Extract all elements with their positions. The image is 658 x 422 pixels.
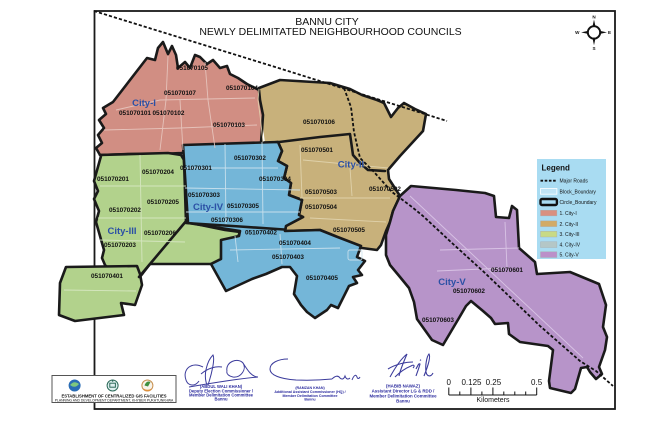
svg-text:Legend: Legend: [542, 164, 571, 173]
svg-text:051070206: 051070206: [144, 230, 176, 237]
svg-text:051070403: 051070403: [272, 254, 304, 261]
svg-text:051070306: 051070306: [211, 217, 243, 224]
svg-text:051070503: 051070503: [305, 189, 337, 196]
svg-text:City-IV: City-IV: [193, 202, 224, 213]
svg-text:051070202: 051070202: [109, 207, 141, 214]
svg-text:051070305: 051070305: [227, 203, 259, 210]
svg-text:051070501: 051070501: [301, 147, 333, 154]
svg-text:051070405: 051070405: [306, 275, 338, 282]
svg-text:0: 0: [446, 378, 451, 387]
svg-text:1. City-I: 1. City-I: [560, 211, 577, 217]
svg-text:2. City-II: 2. City-II: [560, 222, 579, 228]
svg-text:City-II: City-II: [338, 160, 364, 171]
svg-text:051070105: 051070105: [176, 65, 208, 72]
svg-text:051070502: 051070502: [369, 186, 401, 193]
svg-text:051070404: 051070404: [279, 240, 311, 247]
svg-text:051070603: 051070603: [422, 317, 454, 324]
svg-text:051070601: 051070601: [491, 267, 523, 274]
svg-text:Major Roads: Major Roads: [560, 179, 589, 185]
svg-text:City-V: City-V: [438, 277, 466, 288]
svg-text:051070303: 051070303: [188, 192, 220, 199]
svg-text:Block_Boundary: Block_Boundary: [560, 189, 597, 195]
svg-text:051070106: 051070106: [303, 119, 335, 126]
svg-text:NEWLY DELIMITATED NEIGHBOURHOO: NEWLY DELIMITATED NEIGHBOURHOOD COUNCILS: [199, 26, 461, 38]
svg-text:0.25: 0.25: [486, 378, 502, 387]
svg-text:051070201: 051070201: [97, 176, 129, 183]
svg-text:Kilometers: Kilometers: [476, 397, 510, 404]
svg-text:5. City-V: 5. City-V: [560, 253, 580, 259]
svg-text:051070302: 051070302: [234, 155, 266, 162]
svg-text:City-III: City-III: [107, 226, 136, 237]
svg-text:051070103: 051070103: [213, 122, 245, 129]
svg-text:PLANNING AND DEVELOPMENT DEPAR: PLANNING AND DEVELOPMENT DEPARTMENT, KHY…: [55, 399, 174, 403]
svg-text:3. City-III: 3. City-III: [560, 232, 580, 238]
svg-text:E: E: [608, 30, 611, 35]
svg-text:051070205: 051070205: [147, 199, 179, 206]
svg-text:051070102: 051070102: [153, 110, 185, 117]
svg-text:Bannu: Bannu: [396, 398, 410, 403]
svg-text:051070505: 051070505: [333, 227, 365, 234]
svg-text:Bannu: Bannu: [304, 398, 315, 402]
svg-text:051070107: 051070107: [164, 90, 196, 97]
svg-text:W: W: [575, 30, 580, 35]
svg-text:0.5: 0.5: [531, 378, 543, 387]
svg-text:0.125: 0.125: [461, 378, 482, 387]
svg-text:051070304: 051070304: [259, 176, 291, 183]
svg-text:Bannu: Bannu: [214, 397, 227, 402]
svg-text:051070204: 051070204: [142, 169, 174, 176]
svg-text:051070101: 051070101: [119, 110, 151, 117]
svg-text:City-I: City-I: [132, 98, 156, 109]
svg-text:S: S: [592, 46, 595, 51]
svg-text:051070402: 051070402: [245, 230, 277, 237]
svg-text:4. City-IV: 4. City-IV: [560, 243, 581, 249]
svg-text:051070504: 051070504: [305, 204, 337, 211]
svg-text:Circle_Boundary: Circle_Boundary: [560, 200, 597, 206]
svg-text:051070301: 051070301: [180, 165, 212, 172]
svg-text:051070203: 051070203: [104, 242, 136, 249]
svg-text:051070104: 051070104: [226, 85, 258, 92]
svg-text:051070401: 051070401: [91, 273, 123, 280]
svg-text:051070602: 051070602: [453, 288, 485, 295]
